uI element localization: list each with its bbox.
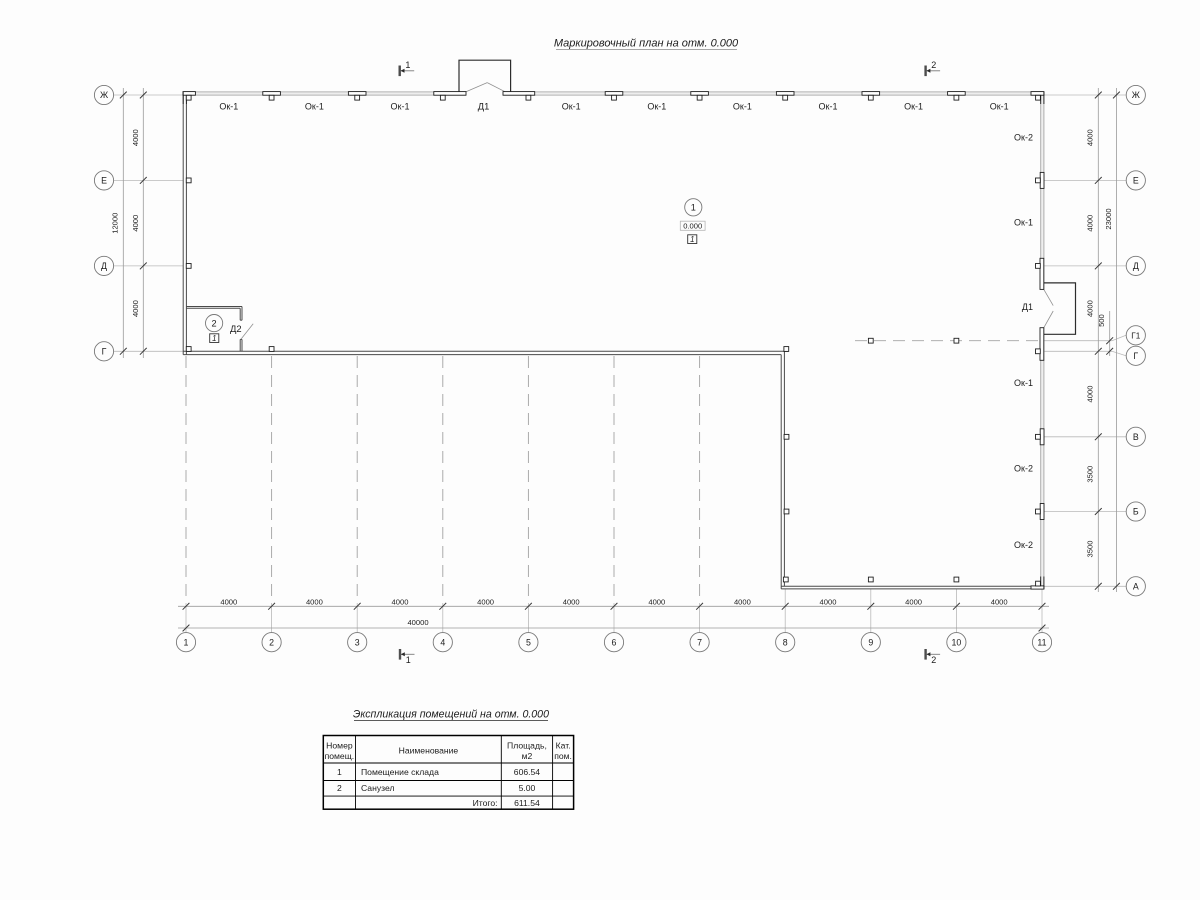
svg-text:2: 2 [931,655,936,665]
svg-text:3500: 3500 [1086,541,1095,558]
svg-text:4000: 4000 [131,129,140,146]
svg-text:Санузел: Санузел [361,783,394,793]
svg-text:Ж: Ж [100,90,108,100]
svg-text:Итого:: Итого: [473,798,498,808]
svg-text:Ок-2: Ок-2 [1014,540,1033,550]
svg-text:Ок-1: Ок-1 [904,102,923,112]
svg-text:7: 7 [697,637,702,647]
svg-text:Экспликация помещений на отм.: Экспликация помещений на отм. 0.000 [353,708,549,720]
svg-text:606.54: 606.54 [514,767,541,777]
svg-text:40000: 40000 [407,618,428,627]
svg-text:4000: 4000 [1086,129,1095,146]
svg-text:Г: Г [102,347,107,357]
svg-text:Маркировочный план на отм. 0.0: Маркировочный план на отм. 0.000 [554,38,739,50]
svg-text:4: 4 [440,637,445,647]
svg-text:Номер: Номер [326,741,353,751]
svg-text:Д: Д [101,261,107,271]
svg-text:2: 2 [337,783,342,793]
svg-text:500: 500 [1097,314,1106,327]
svg-text:611.54: 611.54 [514,798,540,808]
svg-text:6: 6 [612,637,617,647]
svg-text:А: А [1133,582,1139,592]
svg-text:4000: 4000 [991,597,1008,606]
svg-text:Е: Е [101,176,107,186]
svg-text:4000: 4000 [392,597,409,606]
svg-text:1: 1 [405,60,410,70]
svg-text:Ок-2: Ок-2 [1014,133,1033,143]
svg-text:Ок-1: Ок-1 [733,102,752,112]
svg-text:м2: м2 [522,751,533,761]
svg-text:3: 3 [355,637,360,647]
svg-text:Ж: Ж [1132,90,1140,100]
svg-text:Б: Б [1133,507,1139,517]
svg-text:3500: 3500 [1086,466,1095,483]
svg-text:Ок-1: Ок-1 [391,102,410,112]
svg-text:Кат.: Кат. [556,741,571,751]
svg-text:1: 1 [212,334,216,343]
svg-text:1: 1 [690,235,694,244]
svg-text:Помещение склада: Помещение склада [361,767,439,777]
svg-text:23000: 23000 [1104,208,1113,229]
svg-text:1: 1 [184,637,189,647]
svg-text:Ок-1: Ок-1 [562,102,581,112]
svg-text:4000: 4000 [820,597,837,606]
svg-text:1: 1 [337,767,342,777]
svg-text:Г1: Г1 [1131,332,1140,341]
svg-text:5.00: 5.00 [519,783,536,793]
svg-text:4000: 4000 [1086,386,1095,403]
svg-text:1: 1 [406,655,411,665]
svg-text:4000: 4000 [477,597,494,606]
svg-text:Наименование: Наименование [399,746,459,756]
svg-text:Ок-1: Ок-1 [990,102,1009,112]
svg-text:Д: Д [1133,261,1139,271]
svg-text:4000: 4000 [306,597,323,606]
svg-text:9: 9 [868,637,873,647]
svg-text:Е: Е [1133,176,1139,186]
svg-text:Ок-1: Ок-1 [305,102,324,112]
svg-text:2: 2 [931,60,936,70]
svg-text:Ок-1: Ок-1 [219,102,238,112]
svg-text:4000: 4000 [220,597,237,606]
svg-text:Ок-1: Ок-1 [647,102,666,112]
svg-text:Ок-1: Ок-1 [1014,218,1033,228]
svg-text:пом.: пом. [554,751,572,761]
svg-text:помещ.: помещ. [325,751,355,761]
svg-text:4000: 4000 [131,215,140,232]
svg-text:4000: 4000 [734,597,751,606]
svg-text:Д1: Д1 [478,101,490,112]
svg-text:4000: 4000 [648,597,665,606]
svg-text:4000: 4000 [563,597,580,606]
svg-text:Д1: Д1 [1022,302,1033,312]
svg-text:Ок-1: Ок-1 [1014,378,1033,388]
svg-text:10: 10 [952,637,962,647]
svg-text:В: В [1133,432,1139,442]
svg-text:Площадь,: Площадь, [507,741,547,751]
svg-text:Д2: Д2 [230,323,242,334]
svg-text:8: 8 [783,637,788,647]
svg-text:Ок-2: Ок-2 [1014,464,1033,474]
svg-text:2: 2 [269,637,274,647]
svg-text:4000: 4000 [905,597,922,606]
svg-text:Ок-1: Ок-1 [819,102,838,112]
svg-text:2: 2 [212,318,217,328]
svg-text:12000: 12000 [111,213,120,234]
svg-text:11: 11 [1037,637,1046,647]
svg-text:4000: 4000 [131,300,140,317]
svg-text:1: 1 [691,203,696,213]
svg-text:Г: Г [1133,351,1138,361]
svg-text:0.000: 0.000 [683,222,702,231]
svg-text:4000: 4000 [1086,300,1095,317]
svg-text:5: 5 [526,637,531,647]
svg-text:4000: 4000 [1086,215,1095,232]
